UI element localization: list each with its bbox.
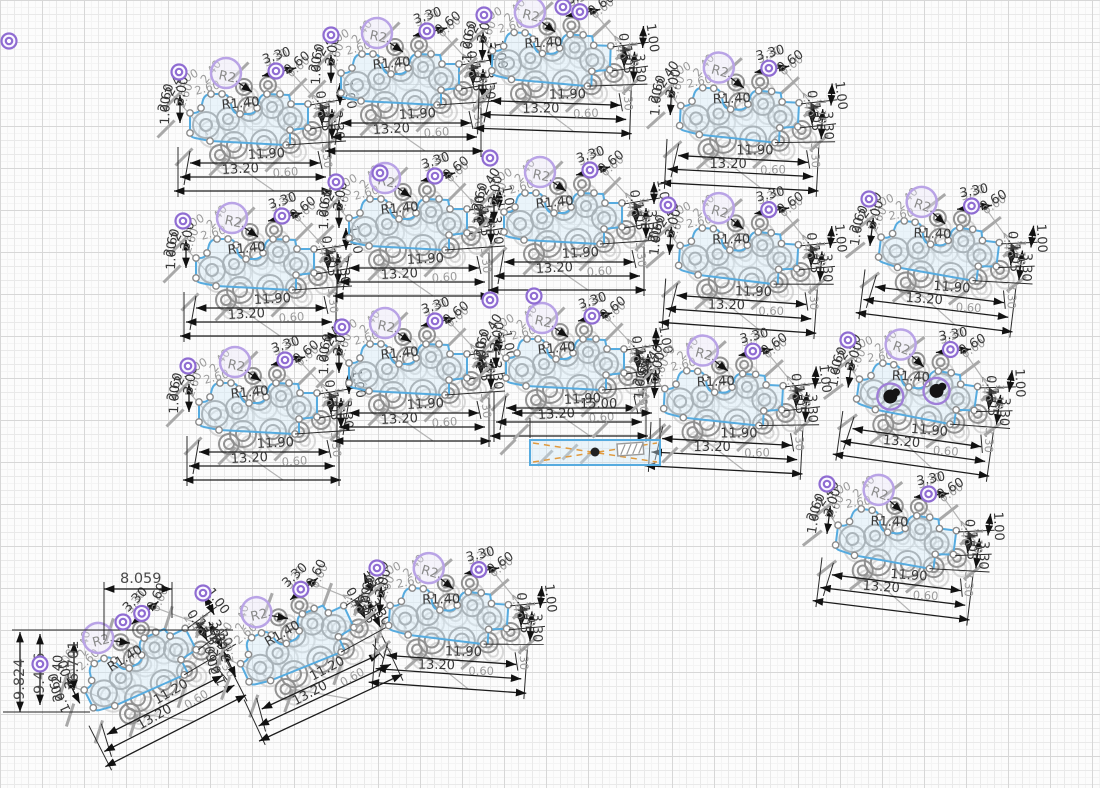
sketch-point[interactable] [358, 98, 364, 104]
sketch-point[interactable] [975, 263, 982, 270]
constraint-icon[interactable] [942, 341, 959, 358]
sketch-point[interactable] [514, 350, 520, 356]
sketch-point[interactable] [971, 407, 978, 414]
dimension-label[interactable]: 0.45 [982, 375, 998, 405]
constraint-icon[interactable] [862, 192, 877, 207]
constraint-icon[interactable] [329, 175, 344, 190]
sketch-point[interactable] [593, 336, 599, 342]
constraint-icon[interactable] [471, 562, 487, 578]
sketch-point[interactable] [405, 631, 412, 638]
radius-dimension-bubble[interactable]: R2 [514, 0, 545, 28]
sketch-point[interactable] [993, 263, 1000, 270]
dimension-line[interactable] [369, 682, 527, 693]
sketch-point[interactable] [237, 111, 243, 117]
constraint-icon[interactable] [820, 477, 835, 492]
sketch-point[interactable] [675, 262, 682, 269]
sketch-point[interactable] [660, 405, 667, 412]
dimension-label[interactable]: 0.45 [312, 90, 329, 120]
dimension-label[interactable]: R1.40 [422, 592, 460, 608]
dimension-label[interactable]: 0.45 [961, 519, 977, 548]
constraint-icon[interactable] [841, 333, 856, 348]
sketch-point[interactable] [768, 88, 775, 95]
dimension-label[interactable]: 13.20 [418, 658, 455, 674]
sketch-point[interactable] [726, 247, 733, 254]
sketch-point[interactable] [436, 341, 442, 347]
sketch-point[interactable] [688, 238, 695, 245]
sketch-point[interactable] [778, 406, 785, 413]
sketch-point[interactable] [760, 407, 767, 414]
dimension-label[interactable]: 13.20 [380, 266, 418, 283]
sketch-point[interactable] [680, 414, 687, 421]
dimension-label[interactable]: 6.701 [66, 640, 82, 682]
dimension-label[interactable]: 1.00 [317, 201, 333, 230]
sketch-point[interactable] [676, 122, 683, 129]
sketch-point[interactable] [465, 588, 472, 595]
sketch-point[interactable] [872, 406, 879, 413]
sketch-point[interactable] [436, 607, 443, 614]
sketch-point[interactable] [311, 270, 317, 276]
sketch-point[interactable] [779, 99, 786, 106]
sketch-point[interactable] [523, 383, 529, 389]
constraint-icon[interactable] [420, 24, 435, 39]
sketch-point[interactable] [501, 209, 507, 215]
sketch-point[interactable] [207, 138, 213, 144]
dimension-label[interactable]: 13.20 [708, 298, 745, 314]
sketch-point[interactable] [603, 372, 609, 378]
sketch-point[interactable] [366, 243, 372, 249]
sketch-point[interactable] [196, 419, 202, 425]
dimension-label[interactable]: 13.20 [221, 161, 259, 178]
sketch-point[interactable] [283, 236, 289, 242]
sketch-point[interactable] [604, 346, 610, 352]
radius-dimension-bubble[interactable]: R2 [362, 18, 392, 48]
dimension-label[interactable]: 13.20 [380, 411, 418, 428]
dimension-label[interactable]: 1.00 [1033, 223, 1049, 253]
sketch-point[interactable] [204, 250, 210, 256]
dimension-line[interactable] [833, 454, 989, 476]
dimension-label[interactable]: 0.45 [626, 189, 643, 219]
sketch-point[interactable] [979, 237, 986, 244]
sketch-point[interactable] [696, 131, 703, 138]
sketch-point[interactable] [533, 190, 539, 196]
constraint-icon[interactable] [585, 309, 600, 324]
sketch-point[interactable] [396, 361, 402, 367]
sketch-point[interactable] [619, 224, 625, 230]
dimension-label[interactable]: 3.30 [975, 540, 991, 569]
constraint-icon[interactable] [477, 8, 492, 23]
constraint-icon[interactable] [963, 198, 980, 215]
sketch-point[interactable] [932, 551, 939, 558]
sketch-point[interactable] [305, 125, 311, 131]
dimension-label[interactable]: 3.30 [819, 253, 835, 282]
dimension-label[interactable]: 13.20 [372, 121, 410, 138]
dimension-label[interactable]: 3.30 [996, 397, 1012, 427]
radius-dimension-bubble[interactable]: R2 [703, 192, 735, 224]
dimension-line[interactable] [474, 128, 632, 134]
constraint-icon[interactable] [2, 34, 17, 49]
radius-dimension-bubble[interactable]: R2 [687, 335, 719, 367]
constraint-icon[interactable] [275, 209, 290, 224]
constraint-icon[interactable] [661, 198, 676, 213]
sketch-point[interactable] [835, 522, 842, 529]
dimension-line[interactable] [659, 322, 817, 333]
sketch-point[interactable] [889, 230, 896, 237]
dimension-label[interactable]: 13.20 [882, 433, 920, 451]
sketch-point[interactable] [246, 400, 252, 406]
sketch-point[interactable] [273, 380, 279, 386]
sketch-point[interactable] [894, 264, 901, 271]
constraint-icon[interactable] [556, 0, 571, 15]
dimension-label[interactable]: R1.40 [697, 374, 735, 390]
sketch-point[interactable] [338, 90, 344, 96]
sketch-point[interactable] [398, 598, 405, 605]
dimension-label[interactable]: 1.00 [1011, 368, 1027, 397]
dimension-label[interactable]: 1.00 [309, 56, 325, 85]
sketch-point[interactable] [590, 42, 597, 49]
sketch-point[interactable] [878, 234, 885, 241]
sketch-point[interactable] [501, 229, 507, 235]
dimension-label[interactable]: 1.00 [648, 87, 665, 117]
sketch-point[interactable] [794, 123, 801, 130]
dimension-label[interactable]: 3.30 [820, 111, 836, 140]
sketch-point[interactable] [926, 514, 933, 521]
dimension-label[interactable]: 13.20 [537, 406, 575, 423]
dimension-line[interactable] [645, 466, 803, 474]
sketch-point[interactable] [936, 525, 943, 532]
dimension-label[interactable]: R1.40 [524, 35, 563, 52]
dimension-label[interactable]: R1.40 [870, 514, 908, 530]
dimension-label[interactable]: 13.20 [862, 579, 900, 597]
constraint-icon[interactable] [583, 163, 598, 178]
sketch-point[interactable] [948, 369, 955, 376]
sketch-point[interactable] [187, 110, 193, 116]
sketch-point[interactable] [591, 190, 597, 196]
sketch-point[interactable] [867, 372, 874, 379]
sketch-point[interactable] [673, 381, 680, 388]
dimension-label[interactable]: 13.20 [227, 306, 265, 323]
dimension-label[interactable]: 3.30 [631, 53, 647, 83]
sketch-point[interactable] [213, 283, 219, 289]
sketch-point[interactable] [522, 30, 529, 37]
sketch-point[interactable] [378, 341, 384, 347]
sketch-point[interactable] [580, 336, 586, 342]
radius-dimension-bubble[interactable]: R2 [527, 303, 557, 333]
sketch-point[interactable] [727, 106, 734, 113]
sketch-point[interactable] [778, 240, 785, 247]
radius-dimension-bubble[interactable]: R2 [525, 157, 555, 187]
radius-dimension-bubble[interactable]: R2 [211, 58, 241, 88]
constraint-icon[interactable] [572, 4, 588, 20]
sketch-point[interactable] [385, 622, 392, 629]
sketch-point[interactable] [198, 105, 204, 111]
constraint-icon[interactable] [428, 314, 443, 329]
radius-dimension-bubble[interactable]: R2 [413, 552, 445, 584]
sketch-point[interactable] [447, 351, 453, 357]
sketch-point[interactable] [677, 242, 684, 249]
sketch-point[interactable] [512, 204, 518, 210]
sketch-point[interactable] [957, 381, 964, 388]
dimension-label[interactable]: 1.00 [472, 195, 488, 224]
dimension-label[interactable]: 3.30 [488, 360, 505, 390]
cad-grid-canvas[interactable]: 3.300.602.602.403.000.602.403.301.102.60… [0, 0, 1100, 788]
dimension-label[interactable]: 1.00 [158, 96, 174, 125]
sketch-point[interactable] [912, 219, 919, 226]
sketch-point[interactable] [793, 265, 800, 272]
sketch-point[interactable] [535, 336, 541, 342]
sketch-instance[interactable]: 3.300.602.602.403.000.602.403.301.102.60… [642, 35, 853, 198]
sketch-point[interactable] [370, 51, 376, 57]
dimension-label[interactable]: 3.30 [804, 394, 820, 423]
dimension-label[interactable]: 0.45 [803, 232, 819, 261]
sketch-point[interactable] [270, 236, 276, 242]
sketch-point[interactable] [956, 224, 963, 231]
constraint-icon[interactable] [324, 28, 339, 43]
sketch-point[interactable] [763, 382, 770, 389]
sketch-point[interactable] [485, 626, 492, 633]
dimension-label[interactable]: 1.00 [357, 586, 375, 616]
sketch-point[interactable] [952, 406, 959, 413]
sketch-point[interactable] [775, 266, 782, 273]
dimension-label[interactable]: 0.45 [513, 592, 529, 621]
dimension-label[interactable]: 0.45 [1004, 231, 1020, 260]
sketch-point[interactable] [288, 101, 294, 107]
sketch-point[interactable] [346, 215, 352, 221]
sketch-point[interactable] [689, 98, 696, 105]
constraint-icon[interactable] [172, 65, 187, 80]
sketch-point[interactable] [752, 371, 759, 378]
constraint-icon[interactable] [428, 169, 443, 184]
sketch-point[interactable] [503, 355, 509, 361]
sketch-point[interactable] [853, 395, 860, 402]
dimension-line[interactable] [259, 674, 402, 741]
sketch-point[interactable] [832, 541, 839, 548]
sketch-point[interactable] [338, 70, 344, 76]
sketch-point[interactable] [293, 272, 299, 278]
constraint-icon[interactable] [116, 615, 131, 630]
strip-center-point[interactable] [591, 448, 600, 457]
sketch-point[interactable] [846, 518, 853, 525]
sketch-point[interactable] [488, 600, 495, 607]
sketch-point[interactable] [228, 380, 234, 386]
sketch-point[interactable] [661, 385, 668, 392]
sketch-point[interactable] [415, 51, 421, 57]
sketch-point[interactable] [277, 91, 283, 97]
radius-dimension-bubble[interactable]: R2 [370, 308, 400, 338]
sketch-point[interactable] [539, 50, 546, 57]
sketch-point[interactable] [423, 196, 429, 202]
sketch-point[interactable] [851, 552, 858, 559]
sketch-point[interactable] [216, 427, 222, 433]
constraint-icon[interactable] [269, 64, 284, 79]
sketch-point[interactable] [589, 68, 596, 75]
sketch-point[interactable] [207, 394, 213, 400]
sketch-point[interactable] [875, 253, 882, 260]
sketch-point[interactable] [755, 228, 762, 235]
constraint-icon[interactable] [745, 343, 761, 359]
dimension-label[interactable]: 1.00 [831, 80, 849, 111]
sketch-point[interactable] [366, 388, 372, 394]
sketch-point[interactable] [286, 380, 292, 386]
sketch-point[interactable] [219, 91, 225, 97]
sketch-point[interactable] [446, 377, 452, 383]
dimension-label[interactable]: 1.00 [647, 226, 665, 256]
dimension-label[interactable]: 1.00 [643, 23, 662, 54]
dimension-label[interactable]: 13.20 [905, 291, 943, 309]
dimension-label[interactable]: 13.20 [710, 157, 747, 172]
constraint-icon[interactable] [335, 320, 350, 335]
constraint-icon[interactable] [278, 353, 293, 368]
constraint-icon[interactable] [33, 657, 48, 672]
sketch-point[interactable] [464, 375, 470, 381]
sketch-point[interactable] [695, 271, 702, 278]
dimension-label[interactable]: 13.20 [522, 101, 559, 117]
sketch-point[interactable] [950, 551, 957, 558]
dimension-label[interactable]: R1.40 [712, 232, 750, 248]
sketch-point[interactable] [710, 225, 717, 232]
sketch-point[interactable] [711, 389, 718, 396]
dimension-label[interactable]: 1.00 [474, 341, 490, 370]
sketch-point[interactable] [196, 399, 202, 405]
radius-dimension-bubble[interactable]: R2 [703, 52, 735, 84]
sketch-point[interactable] [346, 235, 352, 241]
sketch-point[interactable] [420, 585, 427, 592]
sketch-point[interactable] [969, 226, 976, 233]
sketch-point[interactable] [464, 230, 470, 236]
sketch-point[interactable] [294, 246, 300, 252]
radius-dimension-bubble[interactable]: R2 [220, 347, 250, 377]
sketch-point[interactable] [551, 210, 557, 216]
dimension-label[interactable]: R1.40 [891, 369, 930, 386]
sketch-point[interactable] [357, 210, 363, 216]
dimension-label[interactable]: 3.30 [529, 613, 545, 642]
dimension-line[interactable] [661, 183, 819, 191]
sketch-point[interactable] [488, 67, 495, 74]
sketch-point[interactable] [694, 368, 701, 375]
sketch-point[interactable] [346, 360, 352, 366]
sketch-point[interactable] [225, 236, 231, 242]
sketch-point[interactable] [710, 85, 717, 92]
sketch-point[interactable] [357, 355, 363, 361]
constraint-icon[interactable] [373, 166, 388, 181]
sketch-point[interactable] [553, 356, 559, 362]
sketch-point[interactable] [428, 51, 434, 57]
sketch-point[interactable] [503, 375, 509, 381]
dimension-label[interactable]: 1.00 [541, 583, 559, 613]
dimension-label[interactable]: 1.00 [164, 241, 180, 270]
sketch-point[interactable] [243, 256, 249, 262]
sketch-point[interactable] [187, 130, 193, 136]
constraint-icon[interactable] [196, 586, 211, 601]
constraint-icon[interactable] [761, 202, 777, 218]
dimension-label[interactable]: 9.824 [12, 658, 28, 700]
sketch-point[interactable] [346, 380, 352, 386]
dimension-label[interactable]: 1.00 [460, 32, 477, 62]
sketch-point[interactable] [768, 229, 775, 236]
constraint-icon[interactable] [176, 214, 191, 229]
sketch-point[interactable] [314, 414, 320, 420]
constraint-icon[interactable] [920, 486, 937, 503]
sketch-point[interactable] [436, 196, 442, 202]
sketch-point[interactable] [296, 416, 302, 422]
sketch-point[interactable] [439, 61, 445, 67]
dimension-label[interactable]: 1.00 [632, 370, 649, 400]
dimension-label[interactable]: 0.45 [615, 33, 631, 63]
sketch-point[interactable] [489, 47, 496, 54]
dimension-label[interactable]: 1.00 [990, 511, 1006, 541]
dimension-label[interactable]: 3.30 [1018, 252, 1034, 281]
dimension-label[interactable]: 0.45 [321, 379, 338, 409]
dimension-label[interactable]: R1.40 [713, 91, 751, 107]
dimension-label[interactable]: 8.059 [120, 571, 162, 587]
sketch-point[interactable] [378, 196, 384, 202]
constraint-icon[interactable] [527, 289, 542, 304]
sketch-point[interactable] [264, 91, 270, 97]
constraint-icon[interactable] [761, 60, 777, 76]
sketch-point[interactable] [508, 76, 515, 83]
sketch-point[interactable] [755, 87, 762, 94]
sketch-point[interactable] [388, 71, 394, 77]
sketch-point[interactable] [580, 32, 587, 39]
sketch-point[interactable] [677, 102, 684, 109]
sketch-point[interactable] [447, 206, 453, 212]
sketch-point[interactable] [621, 370, 627, 376]
dimension-label[interactable]: 0.45 [804, 90, 820, 119]
sketch-point[interactable] [913, 512, 920, 519]
sketch-point[interactable] [438, 87, 444, 93]
sketch-point[interactable] [423, 341, 429, 347]
sketch-point[interactable] [349, 65, 355, 71]
sketch-point[interactable] [602, 200, 608, 206]
dimension-label[interactable]: 13.20 [535, 260, 573, 277]
sketch-point[interactable] [287, 127, 293, 133]
sketch-point[interactable] [387, 602, 394, 609]
constraint-icon[interactable] [483, 293, 498, 308]
dimension-label[interactable]: 0.45 [788, 373, 804, 402]
sketch-point[interactable] [478, 589, 485, 596]
sketch-point[interactable] [935, 367, 942, 374]
sketch-point[interactable] [297, 390, 303, 396]
sketch-point[interactable] [869, 507, 876, 514]
sketch-point[interactable] [500, 43, 507, 50]
dimension-label[interactable]: 1.00 [167, 385, 183, 414]
constraint-icon[interactable] [370, 561, 385, 576]
sketch-point[interactable] [601, 226, 607, 232]
dimension-label[interactable]: 1.00 [831, 223, 849, 253]
sketch-point[interactable] [890, 361, 897, 368]
sketch-point[interactable] [567, 31, 574, 38]
sketch-point[interactable] [578, 190, 584, 196]
sketch-point[interactable] [193, 255, 199, 261]
constraint-icon[interactable] [181, 359, 196, 374]
sketch-point[interactable] [607, 67, 614, 74]
dimension-label[interactable]: 13.20 [694, 440, 731, 455]
radius-dimension-bubble[interactable]: R2 [217, 203, 247, 233]
constraint-icon[interactable] [483, 151, 498, 166]
sketch-point[interactable] [776, 124, 783, 131]
dimension-label[interactable]: 13.20 [230, 450, 268, 467]
sketch-point[interactable] [521, 237, 527, 243]
sketch-point[interactable] [456, 85, 462, 91]
dimension-label[interactable]: R1.40 [913, 226, 951, 242]
dimension-label[interactable]: 15.00 [580, 397, 617, 412]
sketch-point[interactable] [396, 216, 402, 222]
sketch-point[interactable] [739, 370, 746, 377]
sketch-point[interactable] [503, 625, 510, 632]
sketch-point[interactable] [446, 232, 452, 238]
sketch-point[interactable] [856, 375, 863, 382]
dimension-label[interactable]: 1.00 [317, 346, 333, 375]
sketch-point[interactable] [193, 275, 199, 281]
